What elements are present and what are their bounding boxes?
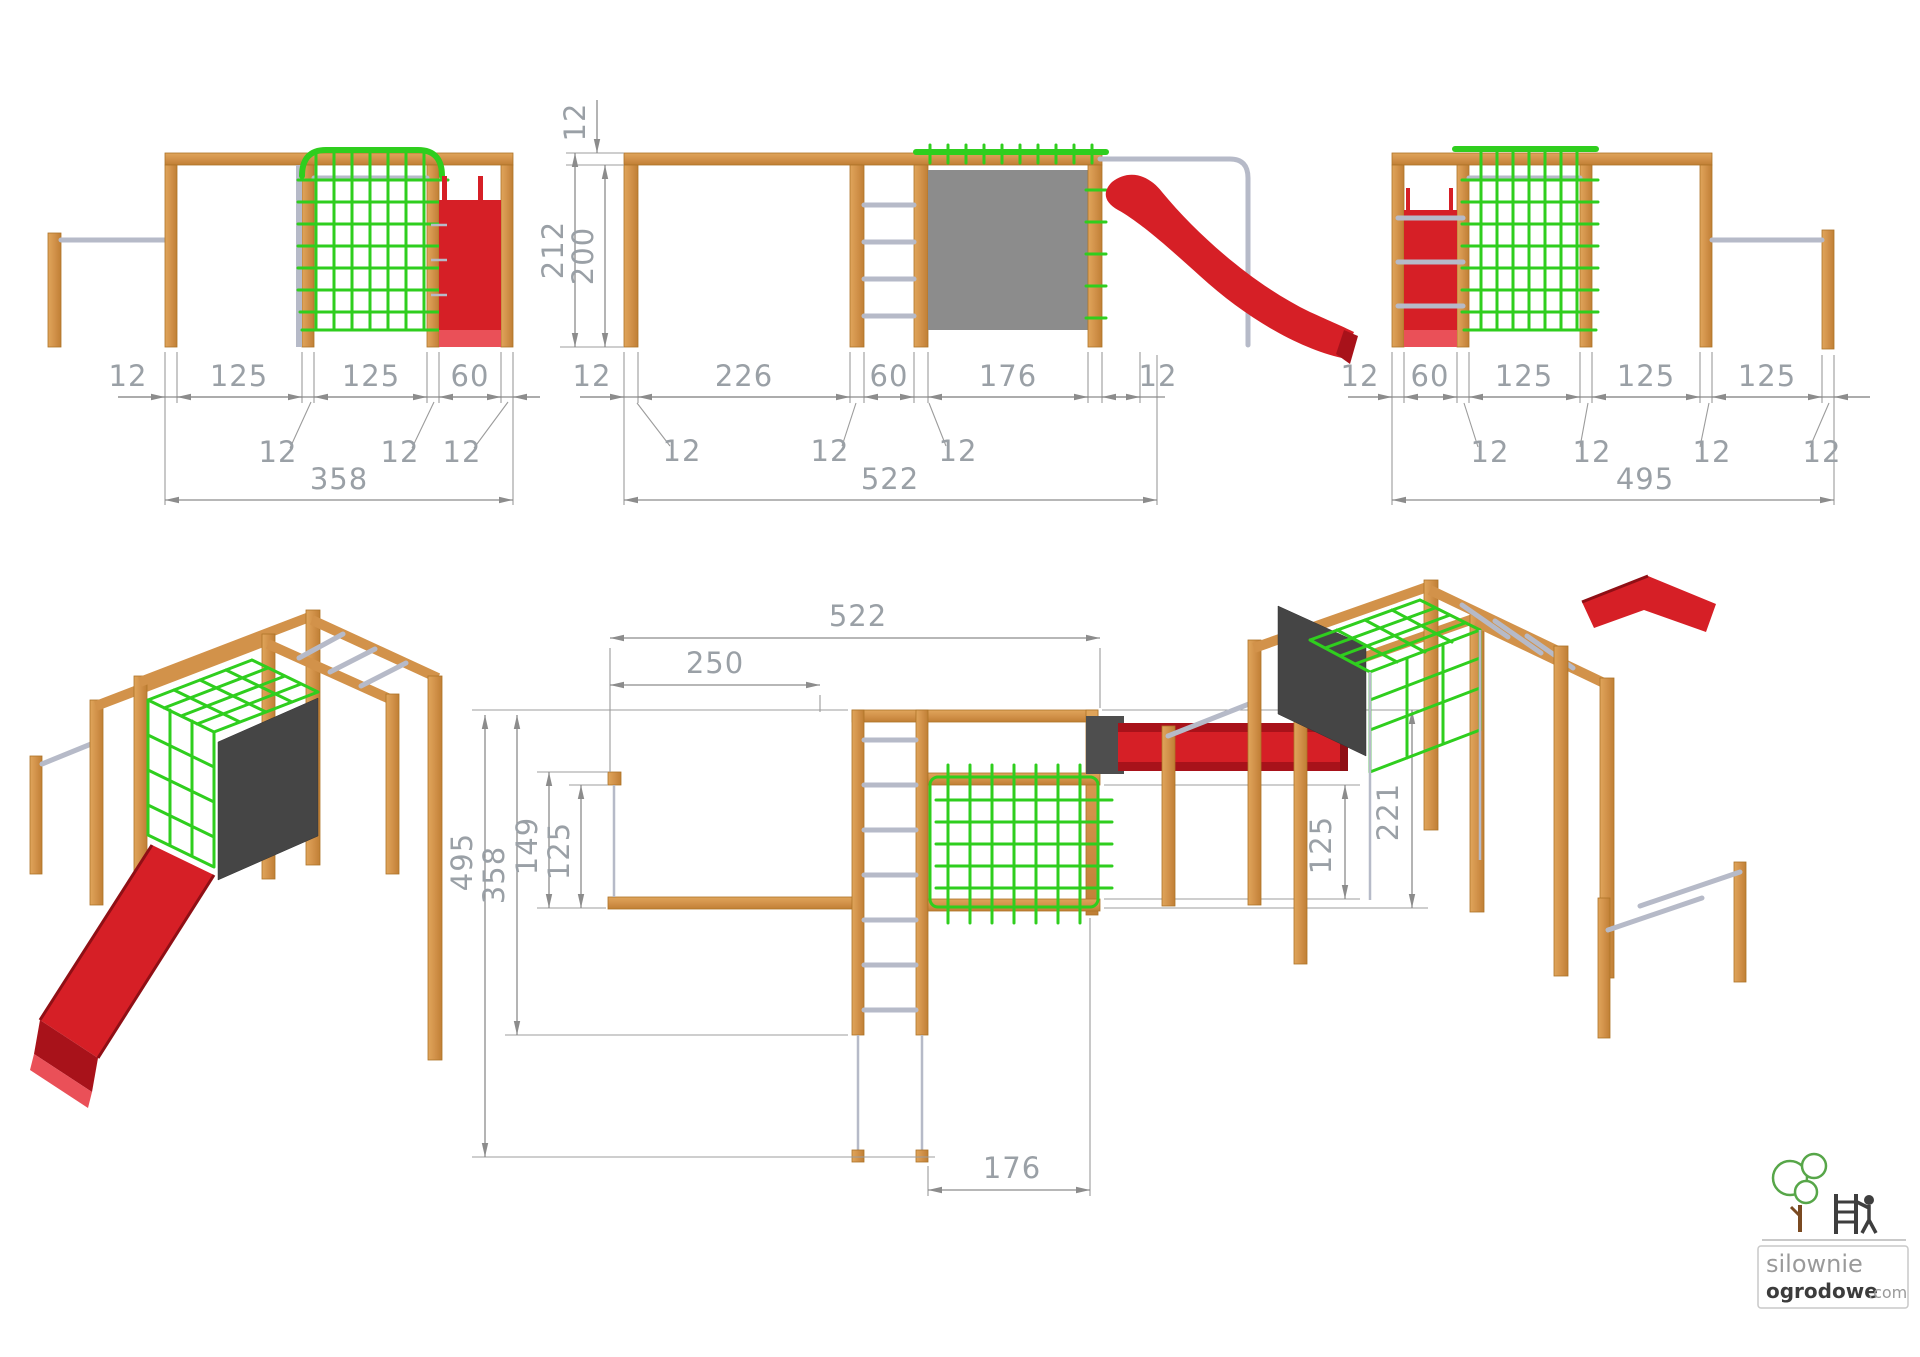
dim-label: 212 — [536, 221, 570, 279]
drawing-sheet: 12 125 125 60 12 12 12 358 12 212 200 — [0, 0, 1920, 1357]
pullup-post — [1822, 230, 1834, 349]
dim-callout: 12 — [1803, 435, 1842, 469]
post — [1470, 612, 1484, 912]
ladder-rail — [916, 710, 928, 1035]
pullup-post-section — [608, 772, 621, 785]
dim-label: 125 — [542, 822, 576, 880]
slide-rail — [1118, 762, 1348, 771]
post — [914, 165, 928, 347]
slide-surface — [40, 845, 214, 1058]
slide-handle — [1449, 188, 1453, 210]
slide-handle — [442, 176, 447, 202]
dim-total: 495 — [1616, 462, 1674, 496]
top-beam — [165, 153, 513, 165]
dim-label: 125 — [1617, 359, 1675, 393]
dim-label: 495 — [445, 833, 479, 891]
dim-label: 12 — [1139, 359, 1178, 393]
logo: silownie ogrodowe .com — [1758, 1154, 1908, 1308]
post — [30, 756, 42, 874]
dim-label: 125 — [1738, 359, 1796, 393]
post — [1734, 862, 1746, 982]
slide-front — [1404, 210, 1457, 347]
post — [302, 165, 314, 347]
top-beam — [852, 710, 1098, 722]
dim-callout: 12 — [1573, 435, 1612, 469]
dim-label: 200 — [566, 227, 600, 285]
post — [427, 165, 439, 347]
post — [624, 165, 638, 347]
post — [165, 165, 177, 347]
post — [1392, 165, 1404, 347]
dim-label: 60 — [451, 359, 490, 393]
back-elevation-view: 12 60 125 125 125 12 12 12 12 495 — [1341, 149, 1870, 505]
post — [1457, 165, 1469, 347]
climbing-net — [936, 800, 1112, 888]
slide-handle — [478, 176, 483, 202]
net-front-face — [148, 700, 214, 867]
brand-suffix: .com — [1868, 1283, 1907, 1302]
iso-view-right — [1162, 576, 1746, 1038]
post — [850, 165, 864, 347]
dim-label: 60 — [1411, 359, 1450, 393]
dim-label: 12 — [109, 359, 148, 393]
slide-surface — [1582, 576, 1716, 632]
dim-label: 12 — [573, 359, 612, 393]
slide-handle — [1406, 188, 1410, 210]
post — [1598, 898, 1610, 1038]
dim-label: 125 — [210, 359, 268, 393]
iso-view-left — [30, 610, 442, 1108]
beam — [608, 897, 853, 909]
dim-callout: 12 — [381, 435, 420, 469]
gym-rack-icon — [1836, 1194, 1876, 1234]
dim-callout: 12 — [811, 434, 850, 468]
post — [501, 165, 513, 347]
slide-side — [439, 200, 501, 347]
side-panel — [928, 170, 1088, 330]
dim-label: 125 — [1495, 359, 1553, 393]
side-elevation-view: 12 212 200 12 226 60 176 12 12 12 12 522 — [536, 100, 1358, 505]
dim-label: 250 — [686, 646, 744, 680]
metal-upright — [296, 165, 302, 347]
slide-foot — [439, 330, 501, 347]
beam — [96, 640, 268, 706]
leader-lines — [1464, 403, 1829, 447]
dim-label: 176 — [979, 359, 1037, 393]
dim-callout: 12 — [1471, 435, 1510, 469]
pullup-bar — [42, 742, 96, 764]
front-elevation-view: 12 125 125 60 12 12 12 358 — [48, 150, 540, 505]
dim-callout: 12 — [443, 435, 482, 469]
dim-label: 125 — [342, 359, 400, 393]
pullup-post — [48, 233, 61, 347]
top-beam — [1392, 153, 1712, 165]
post-section — [852, 1150, 864, 1162]
post — [386, 694, 399, 874]
dim-label: 125 — [1304, 816, 1338, 874]
pullup-bars — [1608, 872, 1740, 930]
post — [1554, 646, 1568, 976]
post — [1700, 165, 1712, 347]
dim-callout: 12 — [1693, 435, 1732, 469]
dim-total: 358 — [310, 462, 368, 496]
dim-label: 12 — [1341, 359, 1380, 393]
ladder-rungs — [864, 740, 916, 1010]
dim-label: 226 — [715, 359, 773, 393]
tree-icon — [1773, 1154, 1826, 1232]
post-section — [916, 1150, 928, 1162]
post-lines — [858, 1035, 922, 1150]
post — [1088, 165, 1102, 347]
ladder-rail — [852, 710, 864, 1035]
ladder-rungs — [864, 205, 914, 316]
dim-label: 149 — [510, 817, 544, 875]
dim-label: 60 — [870, 359, 909, 393]
post — [428, 676, 442, 1060]
post — [1580, 165, 1592, 347]
technical-drawing: 12 125 125 60 12 12 12 358 12 212 200 — [0, 0, 1920, 1357]
dim-callout: 12 — [939, 434, 978, 468]
post — [1248, 640, 1261, 905]
brand-name-bottom: ogrodowe — [1766, 1279, 1878, 1303]
dim-label: 221 — [1371, 783, 1405, 841]
slide-foot — [1404, 330, 1457, 347]
post — [1162, 726, 1175, 906]
dim-label: 12 — [558, 103, 592, 142]
slide-profile — [1106, 175, 1354, 358]
post — [90, 700, 103, 905]
brand-name-top: silownie — [1766, 1250, 1863, 1278]
dim-callout: 12 — [259, 435, 298, 469]
dim-label: 358 — [477, 846, 511, 904]
dim-label: 176 — [983, 1151, 1041, 1185]
dim-total: 522 — [861, 462, 919, 496]
dim-label: 522 — [829, 599, 887, 633]
dim-callout: 12 — [663, 434, 702, 468]
